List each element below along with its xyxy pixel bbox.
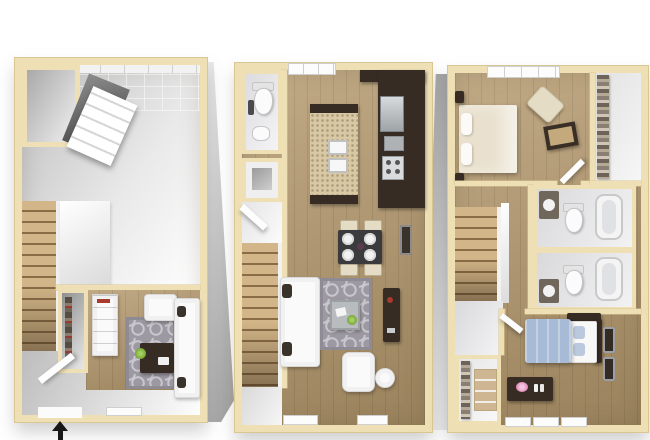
kitchen-window — [288, 63, 336, 75]
dining-chair — [340, 264, 358, 276]
sofa-pillow — [282, 284, 292, 298]
half-bathroom — [242, 70, 282, 154]
refrigerator — [380, 96, 404, 132]
bed2-frame — [569, 321, 597, 363]
table-plant — [347, 315, 357, 325]
living-window-sill — [357, 415, 388, 425]
plate — [342, 233, 354, 245]
hall-landing — [455, 301, 503, 355]
range-stove — [382, 156, 404, 180]
main-closet — [242, 158, 282, 202]
sofa-pillow — [177, 306, 186, 317]
bathtub — [595, 194, 623, 240]
island-end-cap — [310, 195, 358, 204]
pedestal-sink — [252, 126, 270, 141]
burner — [386, 169, 391, 174]
closet-shelves — [597, 75, 609, 179]
tub-basin — [602, 200, 616, 234]
toilet — [565, 208, 583, 233]
bottle — [534, 384, 538, 392]
red-vase — [387, 297, 393, 303]
bed2-pillow — [573, 343, 585, 356]
den-ottoman — [140, 343, 174, 373]
living-armchair — [342, 352, 375, 392]
den-bookcase — [92, 294, 118, 356]
level-2-plan — [235, 63, 432, 432]
bed2-duvet — [525, 319, 571, 363]
ottoman-tray — [158, 357, 169, 365]
bed-pillow — [461, 113, 472, 135]
bath-mat — [248, 100, 254, 115]
closet-shelf-unit — [474, 369, 497, 411]
utility-box — [252, 168, 272, 190]
wall-art — [400, 225, 412, 255]
bathroom-1 — [533, 185, 636, 251]
stair-rail-wall — [501, 203, 509, 303]
round-side-table — [375, 368, 395, 388]
stairs-level3 — [455, 207, 501, 301]
den-armchair — [144, 294, 177, 321]
burner — [386, 160, 391, 165]
bathroom-2 — [533, 249, 636, 311]
dining-chair — [364, 264, 382, 276]
red-books — [97, 299, 110, 303]
magazine — [335, 307, 346, 317]
primary-bed — [459, 105, 517, 173]
plate — [342, 249, 354, 261]
wall-frame — [603, 357, 615, 381]
den-plant — [135, 348, 146, 359]
flowers — [516, 382, 528, 392]
nightstand — [455, 91, 464, 103]
vanity-sink — [543, 285, 555, 297]
coffee-table — [330, 300, 360, 330]
tv-console — [383, 288, 400, 342]
bedroom2-window-sill — [505, 417, 531, 427]
floorplan-canvas — [0, 0, 650, 440]
bathtub — [595, 257, 623, 301]
accent-chair — [526, 85, 566, 124]
bed2-pillow — [573, 326, 585, 339]
centerpiece — [357, 243, 364, 250]
island-sink — [328, 140, 348, 155]
dresser — [507, 377, 553, 401]
vanity — [539, 191, 559, 219]
stairwell-wall — [60, 201, 110, 289]
level-1-plan — [15, 58, 207, 422]
bedroom2-window-sill — [533, 417, 559, 427]
den-sofa — [174, 298, 200, 398]
stairs-level1 — [22, 201, 60, 353]
dining-table — [338, 230, 382, 264]
toilet — [565, 270, 583, 295]
living-window-sill — [283, 415, 318, 425]
stair-landing-bottom — [242, 387, 282, 425]
entry-arrow-icon — [52, 421, 68, 440]
media-box — [387, 328, 395, 333]
bed-pillow — [461, 143, 472, 165]
stairs-level2 — [242, 243, 282, 387]
burner — [395, 160, 400, 165]
closet-shelves — [461, 361, 470, 419]
closet-wall-left — [590, 73, 595, 186]
plate — [364, 233, 376, 245]
plate — [364, 249, 376, 261]
garage-door-header — [76, 65, 200, 73]
den-window-sill — [106, 407, 142, 416]
arrow-stem — [58, 430, 63, 440]
bedroom2-window-sill — [561, 417, 587, 427]
front-door-gap — [38, 407, 82, 418]
bedroom2-closet — [455, 355, 501, 425]
tub-basin — [602, 263, 616, 295]
sofa-pillow — [177, 377, 186, 388]
burner — [395, 169, 400, 174]
den-closet-shelves — [65, 297, 72, 359]
microwave — [384, 136, 404, 151]
island-end-cap — [310, 104, 358, 113]
bottle — [540, 384, 544, 392]
primary-window — [487, 66, 560, 78]
level-3-plan — [448, 66, 648, 432]
wall-frame — [603, 327, 615, 353]
vanity — [539, 279, 559, 303]
framed-art — [543, 121, 579, 150]
island-sink — [328, 158, 348, 173]
sofa-pillow — [282, 342, 292, 356]
toilet — [254, 88, 273, 115]
vanity-sink — [543, 199, 555, 211]
living-sofa — [280, 277, 320, 367]
